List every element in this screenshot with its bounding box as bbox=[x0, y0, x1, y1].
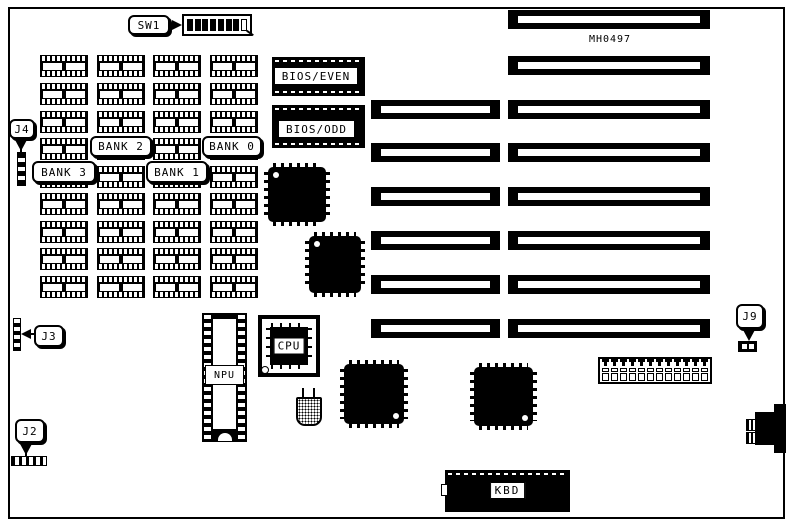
memory-dip-chip bbox=[40, 221, 88, 243]
qfp-pins-top bbox=[479, 363, 528, 367]
memory-dip-chip bbox=[210, 221, 258, 243]
memory-dip-chip bbox=[97, 83, 145, 105]
chip-pins-bottom bbox=[42, 292, 86, 297]
memory-dip-chip bbox=[210, 83, 258, 105]
memory-dip-chip bbox=[153, 83, 201, 105]
kbd-label: KBD bbox=[490, 482, 526, 499]
chip-window-left bbox=[43, 201, 62, 208]
chip-pins-top bbox=[99, 56, 143, 61]
qfp-chip bbox=[470, 363, 537, 430]
power-pin bbox=[638, 359, 645, 367]
chip-window-left bbox=[100, 174, 119, 181]
isa-slot-8bit-segment bbox=[508, 10, 710, 29]
chip-window-left bbox=[156, 146, 175, 153]
j2-pointer-icon bbox=[19, 442, 33, 455]
power-slot-cell bbox=[620, 368, 627, 372]
bank3-label-text: BANK 3 bbox=[41, 166, 87, 179]
cpu-socket: CPU bbox=[258, 315, 320, 377]
power-socket-cell bbox=[656, 373, 663, 381]
npu-label-text: NPU bbox=[214, 370, 235, 381]
power-socket-cell bbox=[683, 373, 690, 381]
chip-window-left bbox=[156, 63, 175, 70]
slot-opening bbox=[381, 193, 490, 200]
memory-dip-chip bbox=[97, 111, 145, 133]
chip-pins-top bbox=[155, 222, 199, 227]
memory-dip-chip bbox=[40, 248, 88, 270]
chip-pins-top bbox=[42, 56, 86, 61]
chip-window-right bbox=[123, 63, 142, 70]
dip-switch bbox=[182, 14, 252, 36]
j9-label: J9 bbox=[736, 304, 764, 329]
power-socket-cell bbox=[692, 373, 699, 381]
power-pin bbox=[701, 359, 708, 367]
slot-opening bbox=[381, 281, 490, 288]
isa-slot-8bit-segment bbox=[508, 319, 710, 338]
power-slot-cell bbox=[629, 368, 636, 372]
dip-switch-position bbox=[202, 19, 208, 31]
power-pin bbox=[620, 359, 627, 367]
chip-window-right bbox=[123, 174, 142, 181]
power-slot-cell bbox=[611, 368, 618, 372]
isa-slot-16bit-segment bbox=[371, 231, 500, 250]
dip-switch-position bbox=[210, 19, 216, 31]
chip-pins-bottom bbox=[42, 209, 86, 214]
isa-slot-8bit-segment bbox=[508, 187, 710, 206]
chip-window-left bbox=[156, 91, 175, 98]
power-pin bbox=[602, 359, 609, 367]
chip-pins-bottom bbox=[42, 237, 86, 242]
chip-pins-top bbox=[42, 139, 86, 144]
chip-pins-bottom bbox=[212, 209, 256, 214]
chip-window-left bbox=[213, 119, 232, 126]
chip-pins-top bbox=[212, 277, 256, 282]
chip-window-right bbox=[179, 284, 198, 291]
chip-window-left bbox=[100, 63, 119, 70]
memory-dip-chip bbox=[210, 193, 258, 215]
qfp-pin1-dot-icon bbox=[522, 415, 528, 421]
sw1-label-text: SW1 bbox=[138, 19, 161, 32]
power-slot-cell bbox=[665, 368, 672, 372]
slot-opening bbox=[381, 149, 490, 156]
din-pin-block-top bbox=[746, 419, 756, 431]
power-slot-cell bbox=[602, 368, 609, 372]
power-socket-cell bbox=[638, 373, 645, 381]
power-slot-cell bbox=[656, 368, 663, 372]
j9-jumper-cell bbox=[742, 344, 747, 349]
j2-label: J2 bbox=[15, 419, 45, 443]
sw1-label: SW1 bbox=[128, 15, 170, 35]
memory-dip-chip bbox=[97, 193, 145, 215]
qfp-chip bbox=[264, 163, 330, 226]
chip-window-left bbox=[43, 256, 62, 263]
memory-dip-chip bbox=[40, 55, 88, 77]
chip-window-left bbox=[100, 229, 119, 236]
chip-pins-bottom bbox=[155, 71, 199, 76]
chip-window-left bbox=[43, 63, 62, 70]
chip-window-right bbox=[123, 201, 142, 208]
slot-opening bbox=[381, 237, 490, 244]
chip-pins-bottom bbox=[212, 127, 256, 132]
chip-window-right bbox=[66, 256, 85, 263]
chip-pins-bottom bbox=[155, 154, 199, 159]
bank1-label: BANK 1 bbox=[146, 161, 208, 183]
npu-label: NPU bbox=[205, 365, 244, 385]
chip-window-left bbox=[156, 256, 175, 263]
chip-window-right bbox=[123, 284, 142, 291]
power-pins-row bbox=[602, 359, 708, 367]
chip-window-left bbox=[156, 284, 175, 291]
chip-pins-top bbox=[212, 222, 256, 227]
chip-window-right bbox=[179, 201, 198, 208]
chip-pins-bottom bbox=[155, 209, 199, 214]
isa-slot-8bit-segment bbox=[508, 231, 710, 250]
chip-window-right bbox=[66, 91, 85, 98]
qfp-pins-bottom bbox=[314, 293, 356, 297]
cpu-pin1-dot-icon bbox=[261, 366, 269, 374]
cpu-label: CPU bbox=[274, 338, 305, 355]
board-id-text: MH0497 bbox=[578, 34, 642, 45]
bios-odd-label: BIOS/ODD bbox=[279, 121, 354, 137]
qfp-pins-bottom bbox=[273, 222, 321, 226]
slot-opening bbox=[518, 281, 700, 288]
chip-window-left bbox=[213, 174, 232, 181]
memory-dip-chip bbox=[153, 276, 201, 298]
isa-slot-16bit-segment bbox=[371, 100, 500, 119]
kbd-pins-top bbox=[448, 473, 567, 475]
memory-dip-chip bbox=[210, 248, 258, 270]
chip-window-right bbox=[236, 119, 255, 126]
chip-window-right bbox=[179, 229, 198, 236]
memory-dip-chip bbox=[210, 166, 258, 188]
keyboard-din-connector-body bbox=[755, 412, 780, 445]
bank1-label-text: BANK 1 bbox=[154, 166, 200, 179]
memory-dip-chip bbox=[153, 138, 201, 160]
isa-slot-8bit-segment bbox=[508, 143, 710, 162]
power-slot-cell bbox=[683, 368, 690, 372]
power-pin bbox=[629, 359, 636, 367]
chip-pins-bottom bbox=[155, 292, 199, 297]
qfp-chip bbox=[340, 360, 408, 428]
qfp-pin1-dot-icon bbox=[273, 172, 279, 178]
chip-window-left bbox=[100, 201, 119, 208]
chip-pins-top bbox=[99, 249, 143, 254]
qfp-chip bbox=[305, 232, 365, 297]
chip-window-left bbox=[100, 284, 119, 291]
j3-pointer-arrow-icon bbox=[21, 329, 31, 339]
din-pin-block-bottom bbox=[746, 432, 756, 444]
cpu-pins-right bbox=[308, 328, 312, 364]
chip-window-right bbox=[179, 91, 198, 98]
j4-pointer-icon bbox=[14, 138, 28, 151]
bios-odd-label-text: BIOS/ODD bbox=[286, 123, 347, 136]
chip-window-left bbox=[43, 119, 62, 126]
chip-window-left bbox=[213, 229, 232, 236]
qfp-pins-left bbox=[264, 172, 268, 217]
memory-dip-chip bbox=[97, 55, 145, 77]
slot-opening bbox=[518, 62, 700, 69]
chip-window-right bbox=[123, 256, 142, 263]
kbd-label-text: KBD bbox=[495, 484, 521, 497]
slot-opening bbox=[381, 106, 490, 113]
j9-jumper-connector bbox=[738, 341, 757, 352]
chip-pins-bottom bbox=[212, 237, 256, 242]
chip-window-right bbox=[66, 146, 85, 153]
power-sockets-row bbox=[602, 373, 708, 381]
qfp-pins-right bbox=[361, 241, 365, 288]
slot-opening bbox=[518, 193, 700, 200]
memory-dip-chip bbox=[40, 193, 88, 215]
chip-pins-top bbox=[99, 277, 143, 282]
j4-jumper-connector bbox=[17, 152, 26, 186]
power-slot-cell bbox=[647, 368, 654, 372]
bank3-label: BANK 3 bbox=[32, 161, 96, 183]
dip-switch-position bbox=[233, 19, 239, 31]
chip-pins-bottom bbox=[212, 264, 256, 269]
chip-pins-top bbox=[99, 222, 143, 227]
chip-pins-bottom bbox=[99, 182, 143, 187]
memory-dip-chip bbox=[97, 221, 145, 243]
memory-dip-chip bbox=[97, 166, 145, 188]
chip-window-left bbox=[213, 256, 232, 263]
chip-window-left bbox=[156, 119, 175, 126]
j4-label-text: J4 bbox=[14, 123, 29, 136]
bios-odd-pins-bottom bbox=[275, 143, 362, 145]
chip-window-left bbox=[100, 119, 119, 126]
qfp-pins-bottom bbox=[349, 424, 399, 428]
power-pin bbox=[692, 359, 699, 367]
chip-window-right bbox=[179, 63, 198, 70]
slot-opening bbox=[518, 149, 700, 156]
chip-window-left bbox=[43, 91, 62, 98]
dip-switch-position bbox=[187, 19, 193, 31]
slot-opening bbox=[518, 106, 700, 113]
chip-pins-bottom bbox=[212, 182, 256, 187]
power-slot-cell bbox=[638, 368, 645, 372]
qfp-pins-top bbox=[273, 163, 321, 167]
chip-window-left bbox=[43, 229, 62, 236]
bank2-label-text: BANK 2 bbox=[98, 140, 144, 153]
chip-pins-top bbox=[42, 222, 86, 227]
chip-window-left bbox=[100, 256, 119, 263]
chip-window-right bbox=[236, 229, 255, 236]
bios-even-chip: BIOS/EVEN bbox=[272, 57, 365, 96]
power-connector bbox=[598, 357, 712, 384]
chip-pins-bottom bbox=[212, 71, 256, 76]
chip-window-left bbox=[156, 201, 175, 208]
crystal-oscillator-icon bbox=[296, 397, 322, 426]
chip-pins-top bbox=[212, 249, 256, 254]
chip-pins-top bbox=[155, 56, 199, 61]
memory-dip-chip bbox=[210, 55, 258, 77]
isa-slot-16bit-segment bbox=[371, 275, 500, 294]
memory-dip-chip bbox=[97, 248, 145, 270]
power-socket-cell bbox=[674, 373, 681, 381]
chip-pins-top bbox=[212, 112, 256, 117]
chip-pins-top bbox=[155, 249, 199, 254]
qfp-pins-right bbox=[404, 369, 408, 419]
chip-window-right bbox=[123, 91, 142, 98]
power-pin bbox=[656, 359, 663, 367]
chip-window-left bbox=[213, 63, 232, 70]
chip-window-right bbox=[66, 119, 85, 126]
bios-odd-pins-top bbox=[275, 108, 362, 110]
isa-slot-16bit-segment bbox=[371, 143, 500, 162]
memory-dip-chip bbox=[153, 248, 201, 270]
chip-pins-bottom bbox=[99, 292, 143, 297]
chip-window-right bbox=[66, 229, 85, 236]
memory-dip-chip bbox=[40, 276, 88, 298]
isa-slot-16bit-segment bbox=[371, 187, 500, 206]
chip-pins-bottom bbox=[99, 264, 143, 269]
cpu-pins-bottom bbox=[271, 365, 307, 369]
chip-pins-bottom bbox=[42, 154, 86, 159]
chip-pins-bottom bbox=[42, 99, 86, 104]
slot-opening bbox=[518, 16, 700, 23]
chip-window-right bbox=[123, 229, 142, 236]
dip-switch-position bbox=[226, 19, 232, 31]
chip-pins-top bbox=[155, 84, 199, 89]
chip-window-left bbox=[100, 91, 119, 98]
bank0-label: BANK 0 bbox=[202, 136, 262, 157]
bios-even-pins-bottom bbox=[275, 91, 362, 93]
chip-pins-top bbox=[155, 112, 199, 117]
chip-pins-top bbox=[212, 167, 256, 172]
chip-pins-top bbox=[212, 194, 256, 199]
power-socket-cell bbox=[620, 373, 627, 381]
chip-pins-top bbox=[212, 84, 256, 89]
qfp-pins-left bbox=[470, 372, 474, 421]
memory-dip-chip bbox=[210, 111, 258, 133]
isa-slot-8bit-segment bbox=[508, 100, 710, 119]
power-slot-cell bbox=[692, 368, 699, 372]
chip-window-right bbox=[179, 146, 198, 153]
bank2-label: BANK 2 bbox=[90, 136, 152, 157]
chip-pins-bottom bbox=[155, 237, 199, 242]
qfp-pins-top bbox=[349, 360, 399, 364]
chip-pins-top bbox=[99, 112, 143, 117]
dip-switch-position bbox=[241, 19, 247, 31]
chip-pins-top bbox=[155, 277, 199, 282]
keyboard-controller-chip: KBD bbox=[445, 470, 570, 512]
chip-pins-bottom bbox=[155, 99, 199, 104]
isa-slot-8bit-segment bbox=[508, 56, 710, 75]
chip-pins-top bbox=[42, 84, 86, 89]
cpu-label-text: CPU bbox=[278, 340, 301, 353]
slot-opening bbox=[381, 325, 490, 332]
memory-dip-chip bbox=[153, 193, 201, 215]
power-socket-cell bbox=[602, 373, 609, 381]
chip-pins-bottom bbox=[42, 71, 86, 76]
chip-pins-top bbox=[212, 56, 256, 61]
power-pin bbox=[674, 359, 681, 367]
kbd-notch-icon bbox=[441, 484, 448, 496]
j3-label-text: J3 bbox=[41, 330, 56, 343]
j2-header-connector bbox=[11, 456, 47, 466]
chip-pins-top bbox=[42, 277, 86, 282]
memory-dip-chip bbox=[97, 276, 145, 298]
chip-window-right bbox=[236, 201, 255, 208]
qfp-pins-right bbox=[326, 172, 330, 217]
chip-window-left bbox=[213, 91, 232, 98]
bios-even-pins-top bbox=[275, 60, 362, 62]
chip-pins-top bbox=[99, 194, 143, 199]
memory-dip-chip bbox=[40, 83, 88, 105]
memory-dip-chip bbox=[153, 55, 201, 77]
dip-switch-position bbox=[195, 19, 201, 31]
chip-pins-bottom bbox=[42, 264, 86, 269]
j2-label-text: J2 bbox=[22, 425, 37, 438]
power-slots-row bbox=[602, 368, 708, 372]
chip-window-left bbox=[213, 201, 232, 208]
j3-jumper-connector bbox=[13, 318, 21, 351]
memory-dip-chip bbox=[153, 221, 201, 243]
chip-window-right bbox=[66, 201, 85, 208]
chip-pins-bottom bbox=[99, 209, 143, 214]
qfp-pins-right bbox=[533, 372, 537, 421]
j9-pointer-icon bbox=[742, 328, 756, 341]
j9-jumper-cell bbox=[749, 344, 754, 349]
bios-odd-chip: BIOS/ODD bbox=[272, 105, 365, 148]
chip-window-left bbox=[43, 146, 62, 153]
chip-pins-top bbox=[155, 194, 199, 199]
power-pin bbox=[683, 359, 690, 367]
isa-slot-16bit-segment bbox=[371, 319, 500, 338]
j3-label: J3 bbox=[34, 325, 64, 347]
j9-label-text: J9 bbox=[742, 310, 757, 323]
chip-pins-bottom bbox=[155, 264, 199, 269]
chip-pins-top bbox=[42, 112, 86, 117]
chip-window-right bbox=[66, 284, 85, 291]
bank0-label-text: BANK 0 bbox=[209, 140, 255, 153]
bios-even-label-text: BIOS/EVEN bbox=[282, 70, 351, 83]
memory-dip-chip bbox=[210, 276, 258, 298]
sw1-pointer-arrow-icon bbox=[172, 20, 182, 30]
chip-window-right bbox=[236, 284, 255, 291]
chip-pins-bottom bbox=[99, 99, 143, 104]
qfp-pins-left bbox=[305, 241, 309, 288]
chip-window-right bbox=[179, 256, 198, 263]
chip-pins-bottom bbox=[99, 237, 143, 242]
qfp-pins-bottom bbox=[479, 426, 528, 430]
dip-switch-position bbox=[218, 19, 224, 31]
j4-label: J4 bbox=[9, 119, 35, 139]
chip-pins-top bbox=[99, 84, 143, 89]
memory-dip-chip bbox=[40, 138, 88, 160]
chip-pins-bottom bbox=[155, 127, 199, 132]
qfp-pins-left bbox=[340, 369, 344, 419]
chip-pins-top bbox=[99, 167, 143, 172]
motherboard-diagram: MH0497 SW1 BANK 2 BANK 0 BANK 3 BANK 1 J… bbox=[0, 0, 791, 527]
chip-pins-top bbox=[42, 249, 86, 254]
chip-window-right bbox=[236, 91, 255, 98]
power-socket-cell bbox=[665, 373, 672, 381]
chip-window-right bbox=[123, 119, 142, 126]
qfp-pins-top bbox=[314, 232, 356, 236]
chip-pins-bottom bbox=[99, 127, 143, 132]
power-socket-cell bbox=[629, 373, 636, 381]
power-socket-cell bbox=[701, 373, 708, 381]
qfp-pin1-dot-icon bbox=[314, 241, 320, 247]
qfp-pin1-dot-icon bbox=[393, 413, 399, 419]
chip-pins-bottom bbox=[99, 71, 143, 76]
slot-opening bbox=[518, 237, 700, 244]
memory-dip-chip bbox=[40, 111, 88, 133]
npu-notch-icon bbox=[218, 433, 232, 441]
chip-window-left bbox=[213, 284, 232, 291]
power-slot-cell bbox=[674, 368, 681, 372]
npu-socket: NPU bbox=[202, 313, 247, 442]
slot-opening bbox=[518, 325, 700, 332]
